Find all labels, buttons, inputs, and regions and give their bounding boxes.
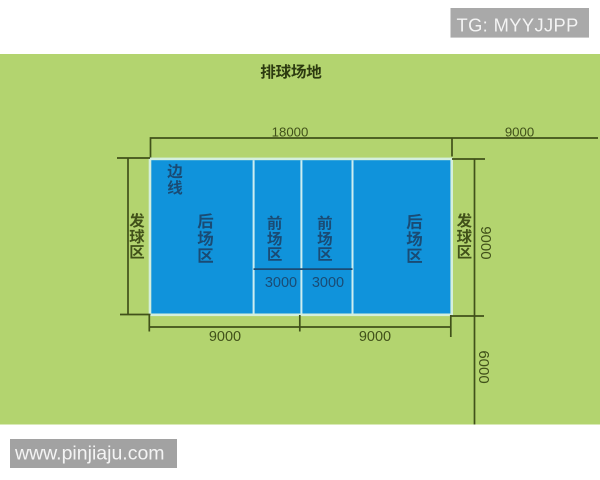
svg-text:TG: MYYJJPP: TG: MYYJJPP [457,15,579,36]
svg-text:6000: 6000 [475,350,492,383]
svg-text:3000: 3000 [265,275,297,291]
svg-text:9000: 9000 [505,124,534,139]
svg-text:9000: 9000 [209,329,241,345]
svg-text:9000: 9000 [359,329,391,345]
svg-text:9000: 9000 [477,226,494,259]
svg-text:3000: 3000 [312,275,344,291]
svg-text:www.pinjiaju.com: www.pinjiaju.com [14,443,165,465]
svg-text:18000: 18000 [272,124,309,139]
